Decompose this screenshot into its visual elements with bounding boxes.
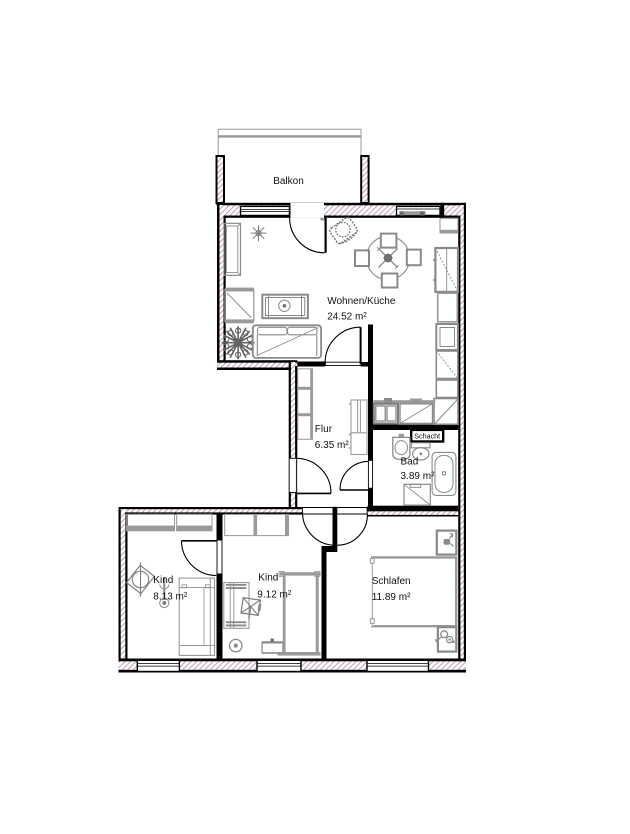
svg-text:3.89 m²: 3.89 m² — [401, 471, 436, 482]
svg-text:Wohnen/Küche: Wohnen/Küche — [327, 296, 396, 307]
svg-text:Kind: Kind — [153, 575, 173, 586]
svg-text:Bad: Bad — [401, 457, 419, 468]
svg-text:Flur: Flur — [315, 424, 333, 435]
svg-text:24.52 m²: 24.52 m² — [327, 311, 367, 322]
svg-text:9.12 m²: 9.12 m² — [257, 590, 292, 601]
svg-text:Schlafen: Schlafen — [372, 576, 411, 587]
svg-text:Kind: Kind — [258, 573, 278, 584]
svg-text:Balkon: Balkon — [273, 176, 304, 187]
svg-text:11.89 m²: 11.89 m² — [372, 592, 411, 603]
svg-text:8.13 m²: 8.13 m² — [153, 592, 188, 603]
svg-text:Schacht: Schacht — [414, 432, 440, 441]
svg-text:6.35 m²: 6.35 m² — [315, 440, 350, 451]
